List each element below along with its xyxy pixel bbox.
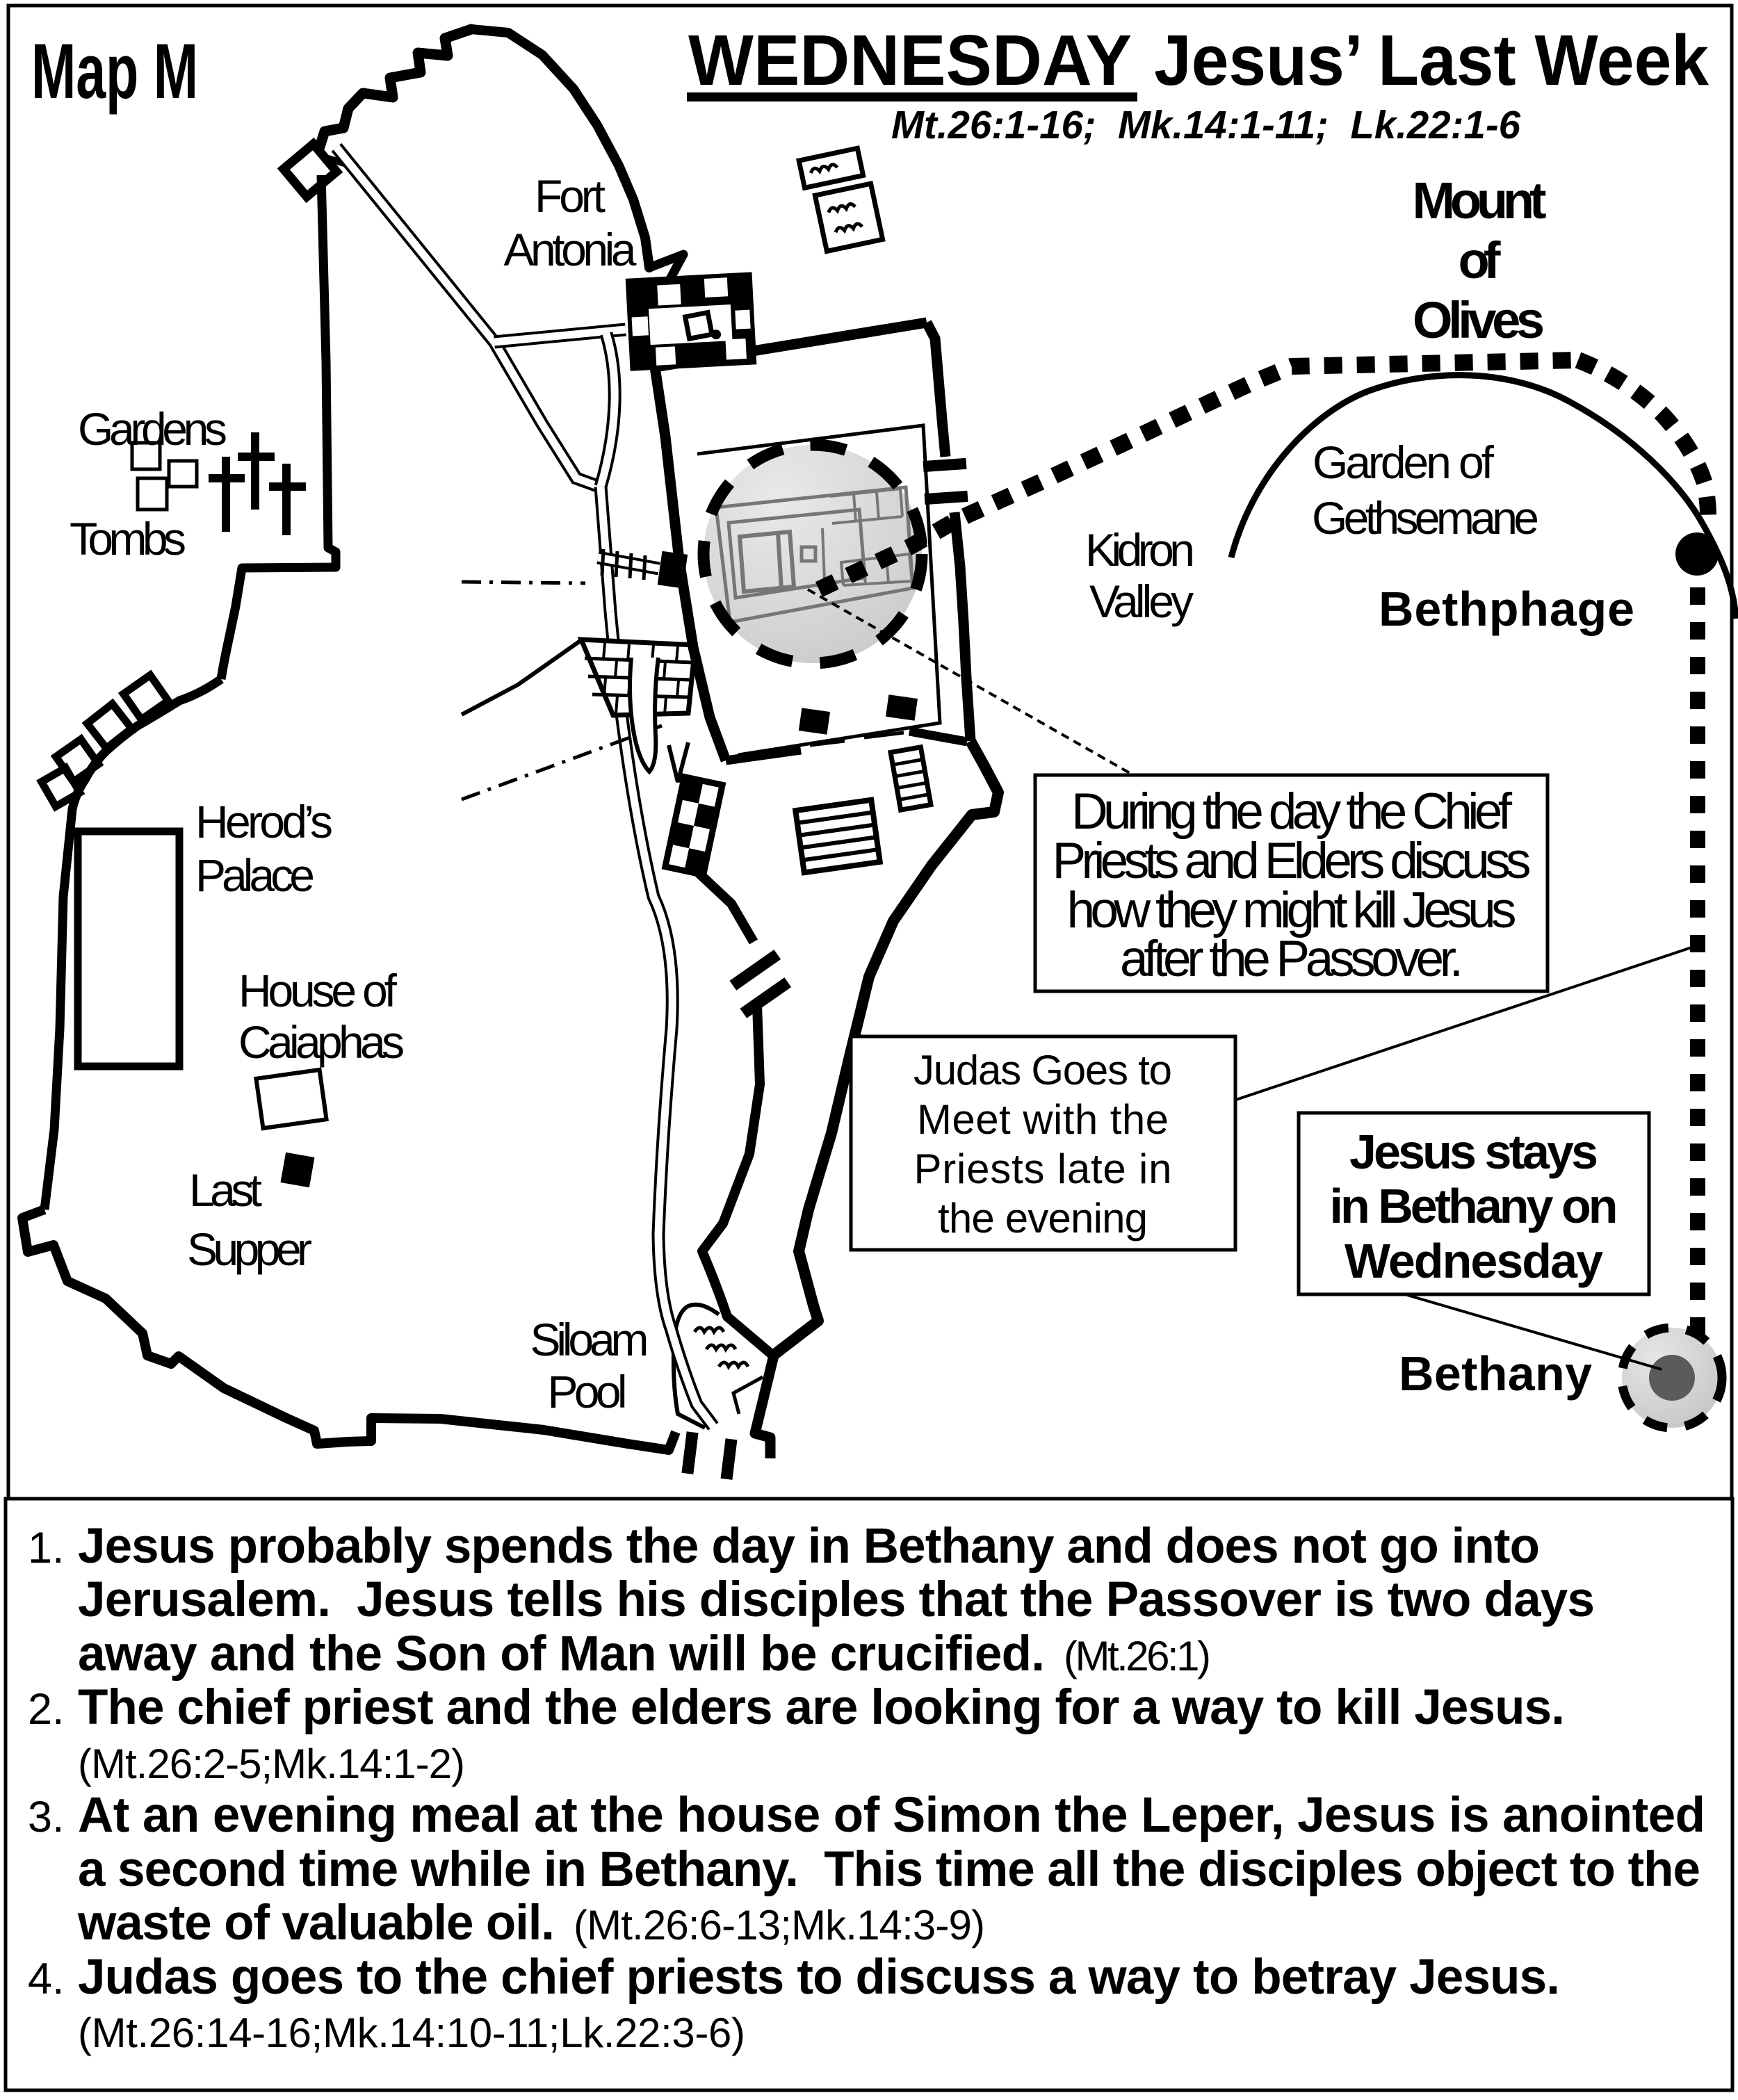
svg-text:4.: 4.: [28, 1955, 65, 2003]
svg-text:after the Passover.: after the Passover.: [1120, 931, 1463, 987]
svg-text:Olives: Olives: [1413, 291, 1545, 349]
svg-text:1.: 1.: [28, 1524, 65, 1572]
svg-text:WEDNESDAY: WEDNESDAY: [688, 20, 1132, 100]
svg-text:Gardens: Gardens: [78, 403, 227, 455]
svg-text:Jesus stays: Jesus stays: [1349, 1125, 1598, 1179]
svg-text:Tombs: Tombs: [70, 513, 186, 564]
svg-text:Mount: Mount: [1413, 172, 1547, 229]
svg-text:Bethphage: Bethphage: [1379, 582, 1634, 636]
svg-text:in Bethany on: in Bethany on: [1330, 1179, 1618, 1233]
svg-text:of: of: [1459, 231, 1501, 289]
svg-text:The chief priest and the elder: The chief priest and the elders are look…: [78, 1680, 1565, 1735]
svg-text:Supper: Supper: [187, 1223, 312, 1275]
svg-text:Jerusalem. Jesus tells his di: Jerusalem. Jesus tells his disciples tha…: [78, 1572, 1595, 1627]
svg-text:Pool: Pool: [548, 1366, 628, 1417]
svg-text:House of: House of: [238, 965, 398, 1016]
svg-text:Palace: Palace: [195, 849, 315, 901]
svg-text:waste of valuable oil.: waste of valuable oil.: [77, 1896, 555, 1951]
svg-text:Meet with the: Meet with the: [917, 1096, 1169, 1143]
svg-text:how they might kill Jesus: how they might kill Jesus: [1067, 882, 1517, 938]
svg-text:3.: 3.: [28, 1793, 65, 1841]
svg-text:At an evening meal at the hous: At an evening meal at the house of Simon…: [78, 1788, 1705, 1843]
svg-text:away and the Son of Man will b: away and the Son of Man will be crucifie…: [78, 1627, 1045, 1682]
svg-text:Jesus’ Last Week: Jesus’ Last Week: [1154, 20, 1709, 100]
svg-text:Siloam: Siloam: [530, 1314, 649, 1365]
svg-text:Caiaphas: Caiaphas: [238, 1016, 405, 1068]
svg-text:Bethany: Bethany: [1399, 1346, 1592, 1401]
svg-text:a second time while in Bethany: a second time while in Bethany. This tim…: [78, 1842, 1700, 1897]
svg-text:During the day the Chief: During the day the Chief: [1071, 783, 1513, 840]
svg-text:Judas goes to the chief priest: Judas goes to the chief priests to discu…: [78, 1950, 1560, 2005]
svg-text:Jesus probably spends the day: Jesus probably spends the day in Bethany…: [78, 1519, 1540, 1574]
svg-text:Priests late in: Priests late in: [914, 1146, 1172, 1192]
svg-text:Antonia: Antonia: [504, 224, 637, 275]
svg-text:Kidron: Kidron: [1085, 524, 1195, 576]
svg-text:Judas Goes to: Judas Goes to: [913, 1047, 1172, 1093]
svg-text:Priests and Elders discuss: Priests and Elders discuss: [1053, 833, 1532, 889]
svg-text:(Mt.26:2-5;Mk.14:1-2): (Mt.26:2-5;Mk.14:1-2): [78, 1741, 465, 1787]
svg-text:Garden of: Garden of: [1313, 437, 1495, 488]
svg-text:Valley: Valley: [1089, 576, 1194, 627]
svg-text:Gethsemane: Gethsemane: [1312, 492, 1539, 544]
svg-text:Fort: Fort: [535, 170, 606, 222]
svg-text:Wednesday: Wednesday: [1345, 1234, 1603, 1288]
svg-text:Last: Last: [189, 1164, 262, 1216]
svg-text:(Mt.26:14-16;Mk.14:10-11;Lk.22: (Mt.26:14-16;Mk.14:10-11;Lk.22:3-6): [78, 2010, 745, 2056]
svg-text:Mt.26:1-16; Mk.14:1-11; Lk.2: Mt.26:1-16; Mk.14:1-11; Lk.22:1-6: [891, 103, 1520, 147]
svg-text:2.: 2.: [28, 1685, 65, 1734]
svg-text:the evening: the evening: [938, 1195, 1148, 1242]
svg-text:Herod’s: Herod’s: [195, 796, 333, 847]
svg-text:(Mt.26:6-13;Mk.14:3-9): (Mt.26:6-13;Mk.14:3-9): [574, 1902, 985, 1948]
svg-text:Map M: Map M: [31, 28, 198, 115]
svg-text:(Mt.26:1): (Mt.26:1): [1064, 1633, 1211, 1679]
